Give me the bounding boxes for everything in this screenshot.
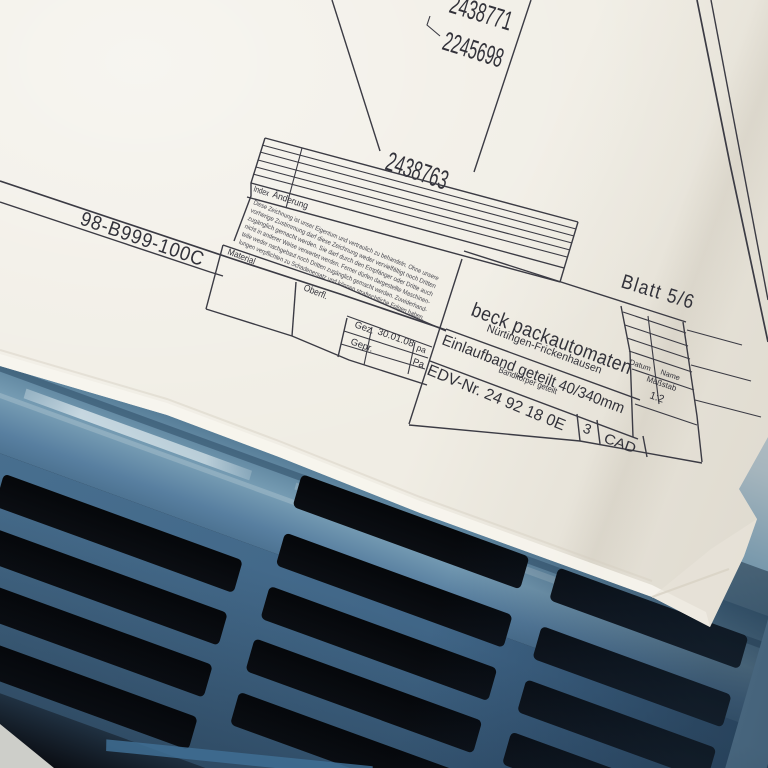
svg-text:Gez.: Gez. xyxy=(353,319,376,336)
svg-text:Oberfl.: Oberfl. xyxy=(302,283,329,303)
svg-text:Index: Index xyxy=(252,183,271,198)
svg-text:pa: pa xyxy=(415,342,428,355)
svg-text:30.01.08: 30.01.08 xyxy=(376,326,415,349)
svg-text:Datum: Datum xyxy=(628,357,652,373)
svg-text:2438763: 2438763 xyxy=(382,146,452,195)
svg-text:98-B999-100C: 98-B999-100C xyxy=(77,208,207,271)
svg-text:3: 3 xyxy=(581,420,594,438)
svg-text:Blatt 5/6: Blatt 5/6 xyxy=(619,271,698,314)
svg-text:1:2: 1:2 xyxy=(648,389,666,405)
